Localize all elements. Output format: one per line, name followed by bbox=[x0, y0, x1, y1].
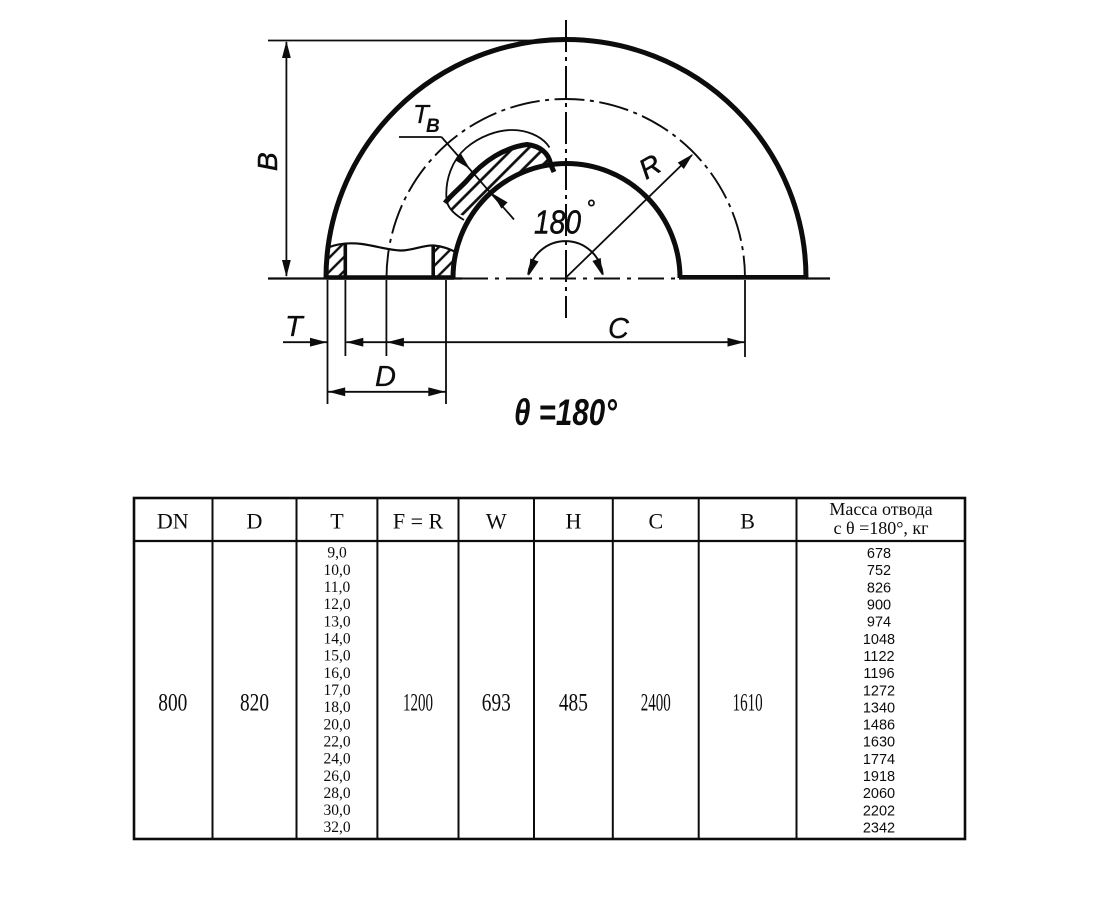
svg-text:1196: 1196 bbox=[863, 666, 894, 682]
svg-text:14,0: 14,0 bbox=[323, 631, 350, 648]
svg-text:W: W bbox=[486, 509, 507, 534]
svg-text:800: 800 bbox=[158, 690, 187, 717]
svg-text:678: 678 bbox=[867, 546, 891, 562]
svg-text:DN: DN bbox=[157, 509, 189, 534]
svg-text:15,0: 15,0 bbox=[323, 648, 350, 665]
svg-text:1200: 1200 bbox=[403, 690, 433, 717]
svg-text:17,0: 17,0 bbox=[323, 682, 350, 699]
svg-text:1486: 1486 bbox=[863, 718, 895, 734]
svg-text:1918: 1918 bbox=[863, 769, 895, 785]
svg-text:485: 485 bbox=[559, 690, 588, 717]
svg-text:1630: 1630 bbox=[863, 735, 895, 751]
svg-text:F = R: F = R bbox=[393, 509, 444, 534]
svg-text:H: H bbox=[565, 509, 581, 534]
svg-text:2202: 2202 bbox=[863, 803, 895, 819]
svg-text:B: B bbox=[426, 116, 440, 137]
svg-text:10,0: 10,0 bbox=[323, 562, 350, 579]
svg-text:2400: 2400 bbox=[641, 690, 671, 717]
svg-text:180: 180 bbox=[534, 204, 582, 241]
svg-text:2060: 2060 bbox=[863, 786, 895, 802]
svg-text:26,0: 26,0 bbox=[323, 768, 350, 785]
svg-text:1122: 1122 bbox=[863, 649, 894, 665]
svg-text:13,0: 13,0 bbox=[323, 613, 350, 630]
svg-text:2342: 2342 bbox=[863, 821, 895, 837]
svg-text:974: 974 bbox=[867, 615, 891, 631]
svg-text:B: B bbox=[740, 509, 755, 534]
svg-text:826: 826 bbox=[867, 580, 891, 596]
svg-text:16,0: 16,0 bbox=[323, 665, 350, 682]
svg-text:θ =180°: θ =180° bbox=[514, 392, 617, 433]
svg-text:30,0: 30,0 bbox=[323, 802, 350, 819]
svg-text:1774: 1774 bbox=[863, 752, 895, 768]
svg-text:1048: 1048 bbox=[863, 632, 895, 648]
svg-text:1340: 1340 bbox=[863, 700, 895, 716]
svg-text:с θ =180°, кг: с θ =180°, кг bbox=[833, 518, 928, 538]
svg-text:T: T bbox=[330, 509, 344, 534]
svg-text:28,0: 28,0 bbox=[323, 785, 350, 802]
svg-text:C: C bbox=[648, 509, 663, 534]
svg-text:32,0: 32,0 bbox=[323, 819, 350, 836]
svg-text:20,0: 20,0 bbox=[323, 716, 350, 733]
svg-text:693: 693 bbox=[482, 690, 511, 717]
svg-text:820: 820 bbox=[240, 690, 269, 717]
svg-text:T: T bbox=[285, 311, 305, 343]
svg-text:C: C bbox=[608, 313, 630, 345]
svg-text:22,0: 22,0 bbox=[323, 733, 350, 750]
svg-text:11,0: 11,0 bbox=[324, 579, 351, 596]
svg-text:°: ° bbox=[587, 195, 596, 220]
svg-text:B: B bbox=[252, 152, 283, 171]
svg-text:1610: 1610 bbox=[733, 690, 763, 717]
svg-text:18,0: 18,0 bbox=[323, 699, 350, 716]
svg-text:12,0: 12,0 bbox=[323, 596, 350, 613]
svg-text:D: D bbox=[247, 509, 263, 534]
svg-text:1272: 1272 bbox=[863, 683, 895, 699]
svg-text:9,0: 9,0 bbox=[327, 545, 347, 562]
svg-text:752: 752 bbox=[867, 563, 891, 579]
svg-text:900: 900 bbox=[867, 598, 891, 614]
svg-text:Масса отвода: Масса отвода bbox=[829, 499, 932, 519]
svg-text:R: R bbox=[634, 148, 667, 185]
svg-text:24,0: 24,0 bbox=[323, 751, 350, 768]
svg-text:D: D bbox=[375, 361, 396, 393]
